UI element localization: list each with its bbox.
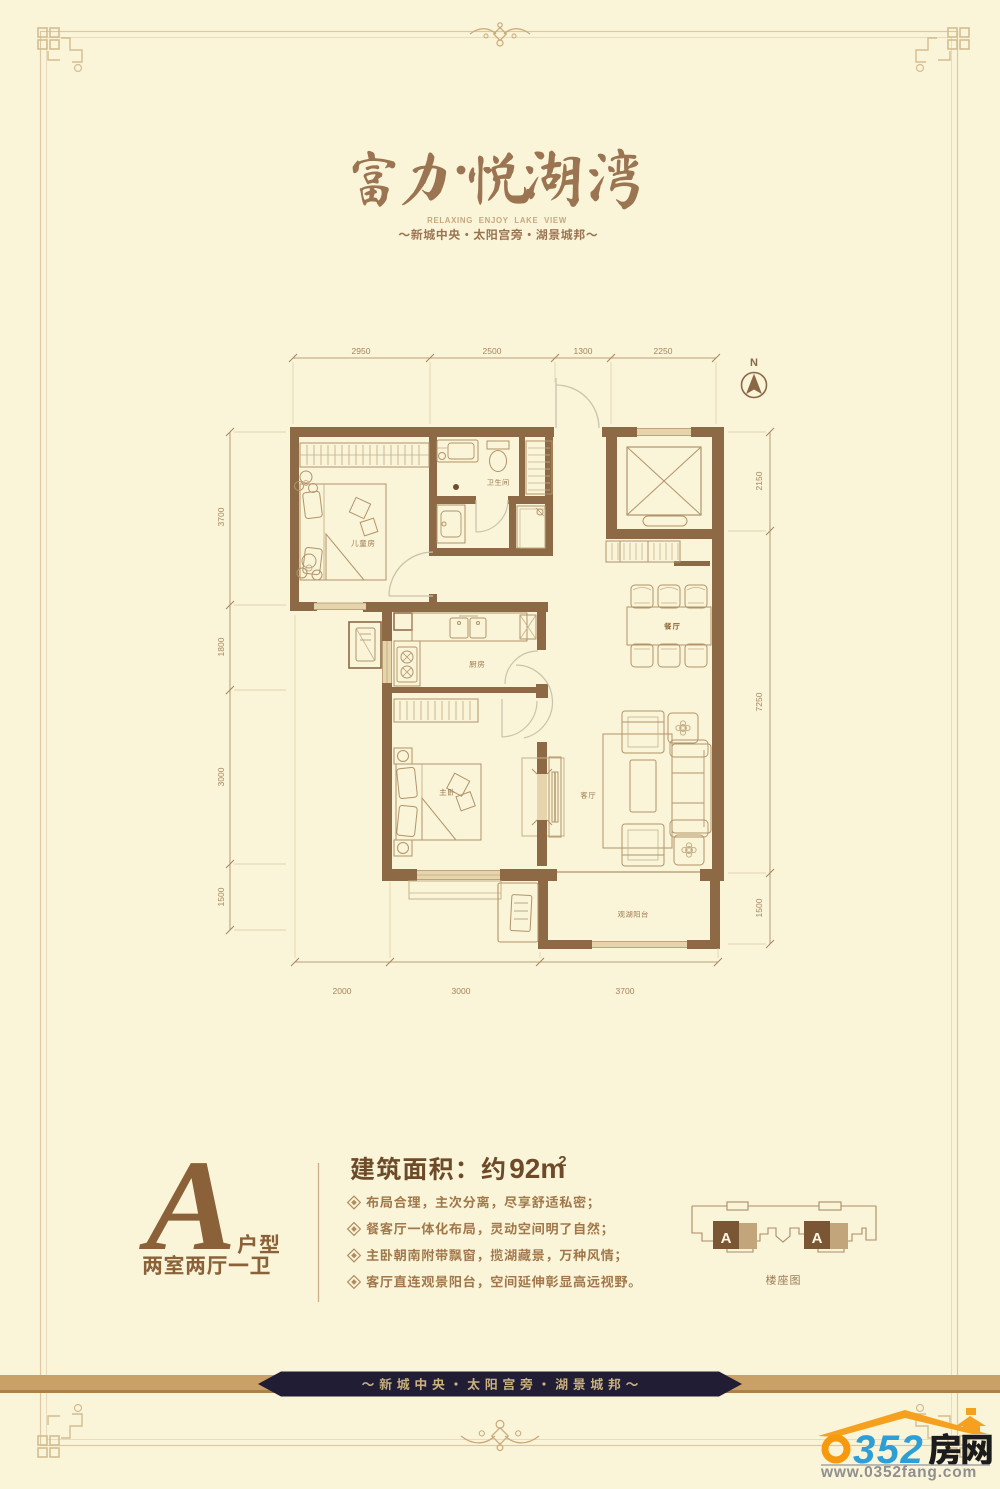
svg-text:2500: 2500: [483, 346, 502, 356]
svg-text:7250: 7250: [754, 692, 764, 711]
svg-text:2950: 2950: [352, 346, 371, 356]
svg-text:1500: 1500: [754, 898, 764, 917]
svg-text:3700: 3700: [616, 986, 635, 996]
svg-text:N: N: [750, 357, 758, 369]
svg-text:2: 2: [558, 1153, 566, 1170]
svg-text:RELAXING ENJOY LAKE VIEW: RELAXING ENJOY LAKE VIEW: [427, 216, 567, 225]
svg-text:A: A: [812, 1230, 823, 1247]
svg-text:3000: 3000: [216, 767, 226, 786]
svg-text:2250: 2250: [654, 346, 673, 356]
svg-text:1800: 1800: [216, 637, 226, 656]
svg-text:2150: 2150: [754, 471, 764, 490]
svg-text:2000: 2000: [333, 986, 352, 996]
svg-text:3700: 3700: [216, 507, 226, 526]
svg-text:www.0352fang.com: www.0352fang.com: [820, 1464, 977, 1481]
svg-text:92m: 92m: [509, 1153, 565, 1184]
svg-text:1300: 1300: [574, 346, 593, 356]
svg-text:A: A: [139, 1133, 236, 1277]
svg-text:A: A: [721, 1230, 732, 1247]
svg-text:3000: 3000: [452, 986, 471, 996]
svg-text:1500: 1500: [216, 887, 226, 906]
